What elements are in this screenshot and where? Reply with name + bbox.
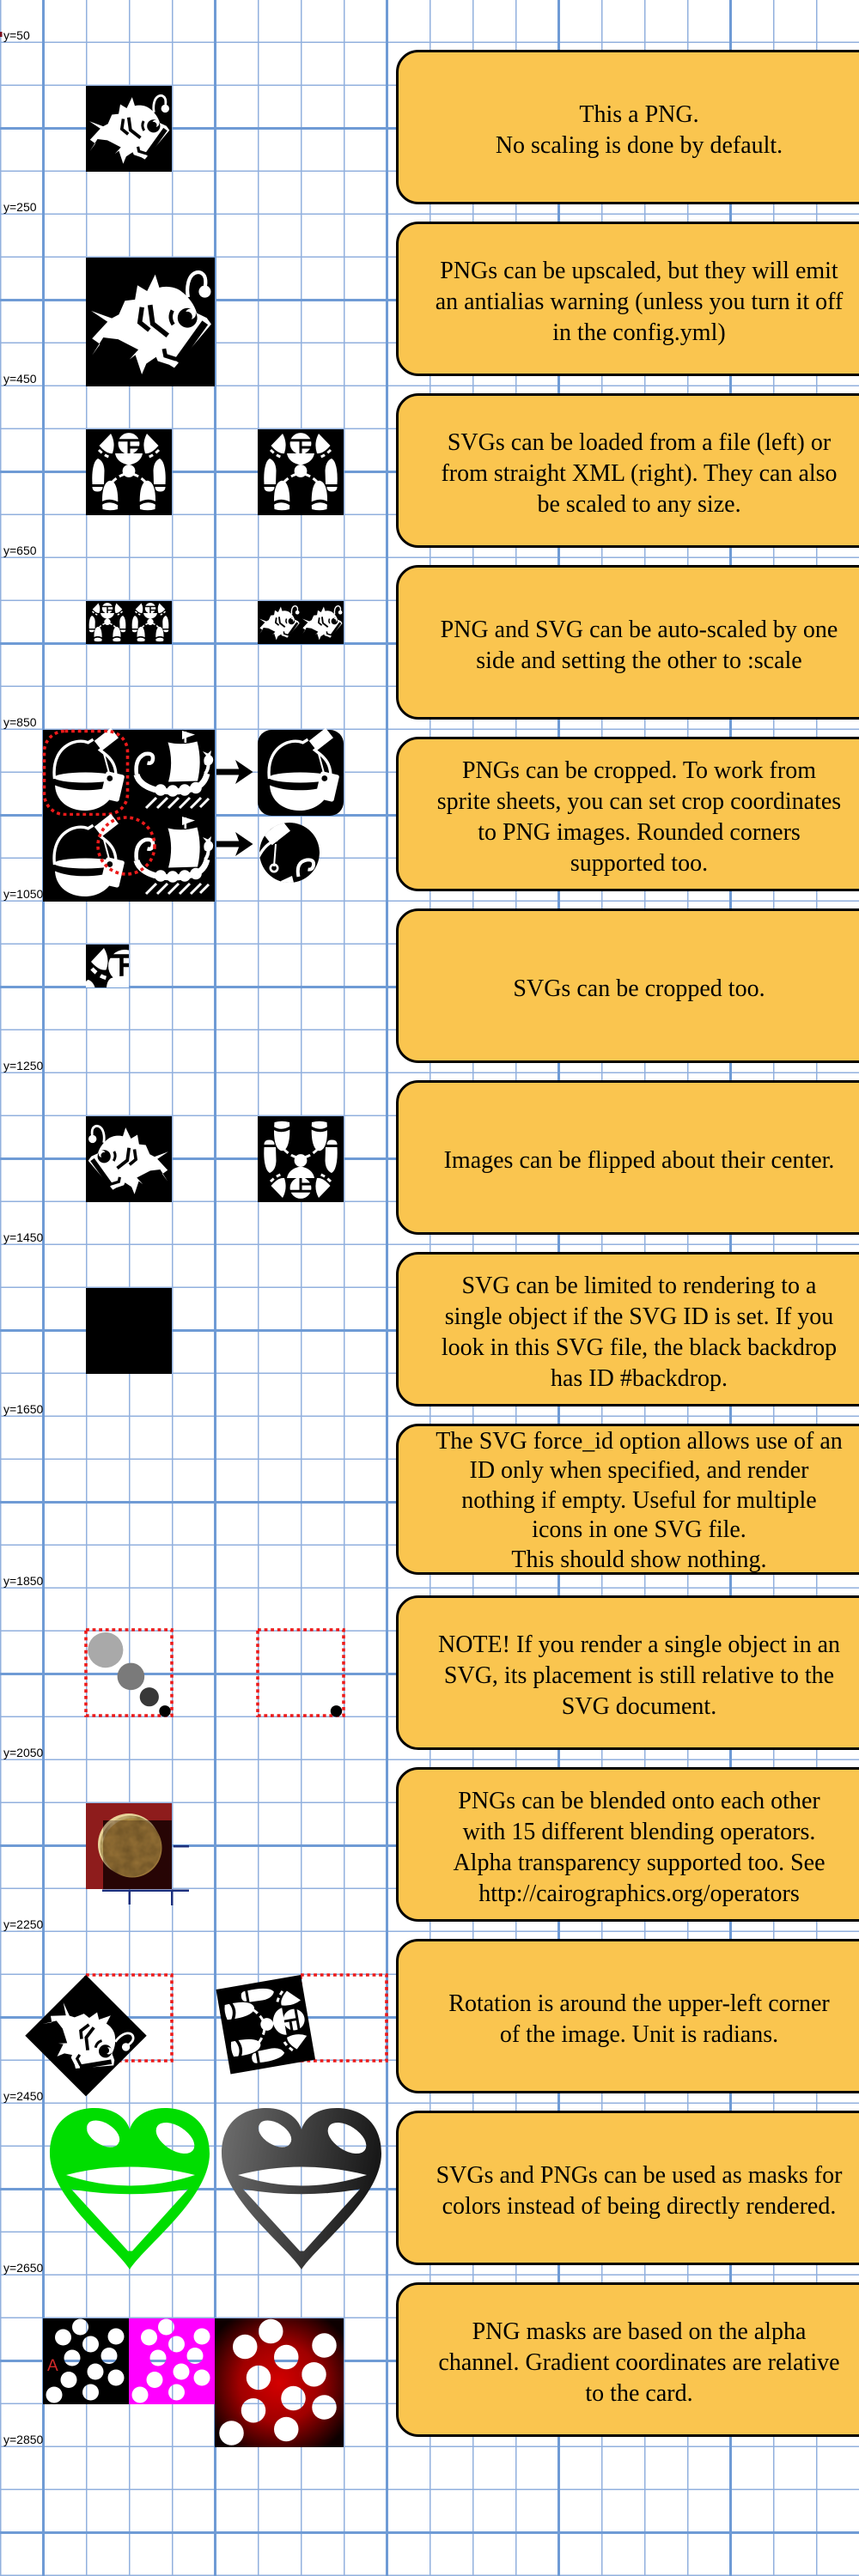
svg-text:A: A [47, 2357, 58, 2375]
